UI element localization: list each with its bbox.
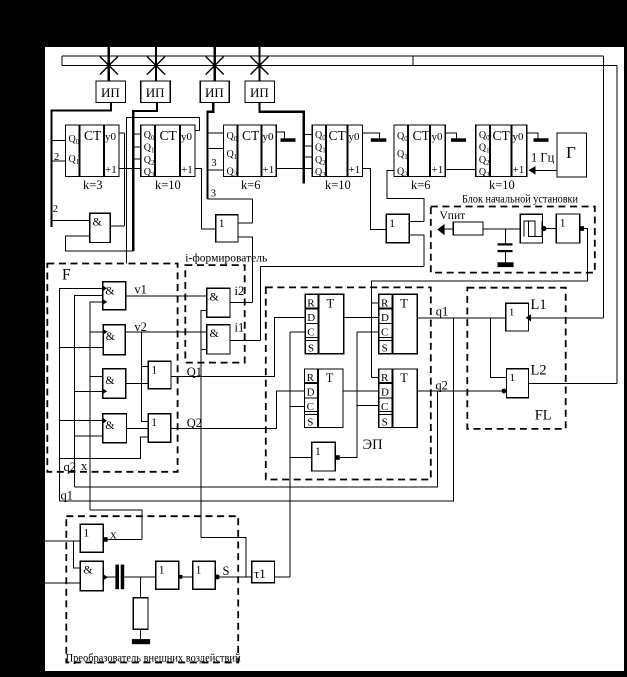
svg-text:q2: q2 (64, 460, 77, 474)
svg-text:k=3: k=3 (83, 178, 103, 192)
svg-text:+1: +1 (513, 164, 525, 176)
svg-text:ЭП: ЭП (363, 437, 384, 453)
svg-text:CT: CT (413, 128, 431, 143)
svg-text:y0: y0 (432, 131, 444, 143)
svg-text:&: & (105, 418, 115, 432)
svg-text:CT: CT (84, 128, 102, 143)
svg-text:+1: +1 (432, 164, 444, 176)
svg-text:y0: y0 (349, 131, 361, 143)
svg-text:b: b (0, 569, 6, 581)
svg-text:1: 1 (510, 372, 516, 384)
svg-text:y0: y0 (181, 131, 193, 143)
svg-text:S: S (382, 343, 388, 355)
svg-text:1: 1 (83, 528, 89, 540)
svg-text:L2: L2 (531, 362, 547, 378)
svg-text:D: D (381, 312, 389, 324)
svg-text:ИП: ИП (146, 85, 165, 100)
svg-text:&: & (105, 284, 115, 298)
svg-text:v2: v2 (134, 320, 147, 334)
svg-text:T: T (400, 297, 408, 311)
svg-text:y0: y0 (105, 131, 117, 143)
svg-text:i2: i2 (235, 284, 245, 298)
svg-text:k=6: k=6 (411, 178, 431, 192)
svg-text:1: 1 (219, 218, 225, 230)
svg-text:2: 2 (54, 152, 59, 163)
svg-text:1: 1 (560, 218, 566, 230)
svg-text:D: D (307, 312, 315, 324)
svg-text:&: & (210, 326, 220, 340)
svg-text:CT: CT (493, 128, 511, 143)
svg-text:F: F (62, 267, 71, 284)
svg-text:1: 1 (389, 218, 395, 230)
svg-text:+1: +1 (349, 164, 361, 176)
svg-text:S: S (382, 417, 388, 429)
svg-text:1: 1 (159, 565, 165, 577)
svg-text:2: 2 (53, 204, 58, 215)
svg-text:q1: q1 (436, 304, 449, 318)
svg-text:1: 1 (315, 446, 321, 458)
svg-text:x: x (110, 528, 117, 542)
svg-text:1: 1 (151, 365, 157, 377)
svg-text:T: T (400, 371, 408, 385)
svg-text:R: R (381, 372, 389, 384)
svg-text:&: & (93, 215, 103, 229)
svg-text:CT: CT (242, 128, 260, 143)
svg-text:Q2: Q2 (187, 416, 202, 430)
svg-text:Q1: Q1 (187, 365, 202, 379)
svg-text:T: T (326, 371, 334, 385)
svg-text:Преобразователь внешних воздей: Преобразователь внешних воздействий (66, 653, 241, 665)
svg-text:ИП: ИП (101, 85, 120, 100)
svg-text:k=10: k=10 (155, 178, 181, 192)
svg-text:i-формирователь: i-формирователь (185, 253, 267, 265)
svg-text:S: S (307, 417, 313, 429)
svg-text:S: S (308, 343, 314, 355)
svg-text:3: 3 (211, 189, 216, 200)
svg-text:L1: L1 (531, 297, 547, 313)
svg-text:i1: i1 (235, 321, 245, 335)
svg-text:y0: y0 (263, 131, 275, 143)
svg-text:CT: CT (160, 128, 178, 143)
svg-text:Г: Г (566, 143, 576, 162)
svg-text:C: C (307, 327, 314, 339)
svg-text:1: 1 (196, 565, 202, 577)
svg-text:k=6: k=6 (241, 178, 261, 192)
svg-text:1 Гц: 1 Гц (531, 151, 555, 165)
svg-text:S: S (223, 564, 230, 578)
svg-text:+1: +1 (181, 164, 193, 176)
svg-text:k=10: k=10 (325, 178, 351, 192)
svg-text:Vпит: Vпит (440, 210, 466, 222)
svg-text:ИП: ИП (205, 85, 224, 100)
svg-text:&: & (106, 329, 116, 343)
svg-text:+1: +1 (263, 164, 275, 176)
svg-text:D: D (307, 386, 315, 398)
svg-text:T: T (327, 297, 335, 311)
svg-text:τ1: τ1 (254, 566, 266, 581)
svg-text:&: & (210, 290, 220, 304)
svg-text:1: 1 (151, 417, 157, 429)
svg-text:x: x (81, 459, 88, 473)
svg-text:&: & (83, 563, 93, 577)
svg-text:y0: y0 (513, 131, 525, 143)
svg-text:&: & (105, 373, 115, 387)
svg-text:R: R (381, 298, 389, 310)
svg-text:q1: q1 (61, 488, 74, 502)
svg-text:D: D (381, 386, 389, 398)
svg-text:R: R (307, 298, 315, 310)
svg-text:CT: CT (329, 128, 347, 143)
svg-text:3: 3 (211, 158, 216, 169)
svg-text:C: C (381, 401, 388, 413)
svg-text:q2: q2 (435, 379, 448, 393)
svg-text:x: x (2, 516, 7, 527)
svg-text:R: R (307, 372, 315, 384)
svg-text:1: 1 (509, 307, 515, 319)
svg-text:ИП: ИП (250, 85, 269, 100)
svg-text:FL: FL (535, 408, 552, 424)
svg-text:C: C (381, 327, 388, 339)
svg-text:Блок начальной установки: Блок начальной установки (462, 193, 578, 206)
svg-text:v1: v1 (134, 283, 147, 297)
svg-text:C: C (307, 401, 314, 413)
svg-text:+1: +1 (105, 164, 117, 176)
svg-text:k=10: k=10 (489, 178, 515, 192)
